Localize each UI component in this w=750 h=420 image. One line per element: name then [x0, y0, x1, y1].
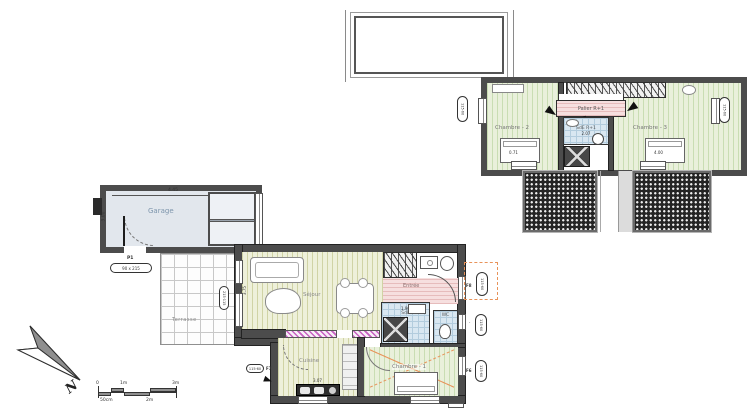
front-door-tag-text: 115·60 [480, 278, 484, 290]
carport-outline-right-line [513, 10, 514, 77]
garage-width-dim: 4.45 [168, 188, 178, 193]
magenta-wall-right [352, 330, 380, 338]
door-p1-size-pill: 90 x 215 [110, 263, 152, 273]
scale-seg-1 [98, 392, 111, 396]
washbasin-r1 [566, 119, 579, 127]
shower-r1 [564, 146, 590, 167]
washing-machine-icon [592, 133, 604, 145]
sde-shower [383, 317, 408, 342]
garage-door-leaf [123, 216, 125, 246]
hall-washbasin [420, 256, 438, 269]
chambre3-bed-dim: 4.00 [654, 150, 663, 155]
floor-plan-canvas: 3.70 Palier R+1 SdE R+1 2.07 0.71 4 [0, 0, 750, 420]
chambre3-bed: 4.00 [645, 138, 685, 163]
tag-f6: F6 [466, 368, 472, 373]
chambre3-south-window [640, 161, 666, 170]
dining-chair-3 [340, 308, 350, 318]
wc-label: WC [434, 313, 457, 318]
sejour-south-wall [242, 330, 285, 338]
chambre2-bed: 0.71 [500, 138, 540, 163]
entry-step [448, 403, 464, 408]
terrasse-door-tag: 215·115 [219, 286, 229, 310]
chambre1-east-window [458, 356, 466, 376]
chambre1-south-window [410, 396, 440, 404]
coffee-table [265, 288, 301, 314]
tag-f8: F8 [466, 283, 472, 288]
garage-entry-gap [124, 246, 146, 253]
carport-outline-inner [354, 16, 504, 74]
upper-window-tag-left: 115·60 [457, 96, 468, 122]
wc-east-window [458, 314, 466, 330]
front-door-tag-pill: 115·60 [476, 272, 488, 296]
chambre1-window-tag-text: 115·60 [479, 365, 483, 377]
palier-room: Palier R+1 [556, 100, 626, 117]
sejour-label: Séjour [303, 292, 321, 298]
scale-seg-4 [150, 388, 176, 392]
chambre1-bed [394, 372, 438, 395]
chambre2-label: Chambre - 2 [495, 125, 529, 131]
garage-depth-dim: 3.00 [102, 211, 107, 221]
upper-window-tag-left-text: 115·60 [461, 103, 465, 115]
scale-seg-3 [124, 392, 150, 396]
house-west-wall-lower [271, 343, 278, 403]
wc-window-tag-text: 115·60 [479, 319, 483, 331]
north-arrow-icon [14, 322, 104, 402]
roof-hatch-left [523, 171, 597, 232]
dining-chair-2 [358, 278, 368, 288]
door-p1-size-text: 90 x 215 [122, 266, 140, 271]
tag-f7: F7 [266, 366, 272, 371]
roof-gap-line [600, 171, 601, 232]
chambre2-west-window [478, 98, 487, 124]
garage-door-opening [255, 193, 263, 245]
sde-washbasin [408, 304, 426, 314]
chambre2-closet [492, 84, 524, 93]
cuisine-south-window [298, 396, 328, 404]
palier-label: Palier R+1 [578, 106, 604, 112]
kitchen-counter [296, 384, 340, 396]
entree-label: Entrée [403, 283, 419, 289]
chambre2-south-window [511, 161, 537, 170]
upper-window-tag-right: 115·60 [719, 97, 730, 123]
carport-outline-left-line [345, 10, 346, 82]
scale-bar: 0 1m 3m 50cm 2m [92, 381, 184, 403]
sejour-window [235, 260, 243, 284]
upper-window-tag-right-text: 115·60 [723, 104, 727, 116]
garage-west-window [93, 198, 102, 215]
kitchen-tall-unit [342, 344, 358, 390]
terrasse-label: Terrasse [172, 317, 197, 323]
magenta-wall-left [285, 330, 337, 338]
ground-staircase [383, 252, 417, 278]
chambre2-bed-dim: 0.71 [509, 150, 518, 155]
cuisine-window-tag-text: 115·60 [249, 367, 261, 371]
roof-hatch-right [633, 171, 711, 232]
hall-toilet [440, 256, 454, 271]
house-top-wall [235, 245, 465, 252]
door-p1-label: P1 [127, 256, 133, 261]
dining-chair-1 [340, 278, 350, 288]
wc-toilet [439, 324, 451, 339]
chambre3-label: Chambre - 3 [633, 125, 667, 131]
north-arrow: N [14, 322, 104, 402]
wc-window-tag-pill: 115·60 [475, 314, 487, 336]
scale-seg-2 [111, 388, 124, 392]
scale-tick-end [176, 386, 177, 398]
terrasse-door-tag-text: 215·115 [222, 291, 226, 305]
chambre1-label: Chambre - 1 [392, 364, 426, 370]
chambre1-window-tag-pill: 115·60 [475, 360, 487, 382]
scale-2m: 2m [146, 398, 153, 403]
cuisine-window-tag-pill: 115·60 [246, 364, 264, 373]
upper-floor-plan: 3.70 Palier R+1 SdE R+1 2.07 0.71 4 [450, 70, 740, 240]
garage-label: Garage [148, 207, 174, 215]
chambre3-armchair [682, 85, 696, 95]
scale-tick-start [98, 386, 99, 398]
scale-1m: 1m [120, 381, 127, 386]
garage-door [208, 192, 256, 246]
scale-50cm: 50cm [100, 398, 113, 403]
terrasse-sliding-door [235, 293, 243, 327]
cuisine-dim: 3.07 [313, 378, 322, 383]
sofa [250, 257, 304, 283]
dining-chair-4 [358, 308, 368, 318]
roof-gap-band [618, 171, 633, 232]
tag-dot: · [469, 320, 471, 326]
